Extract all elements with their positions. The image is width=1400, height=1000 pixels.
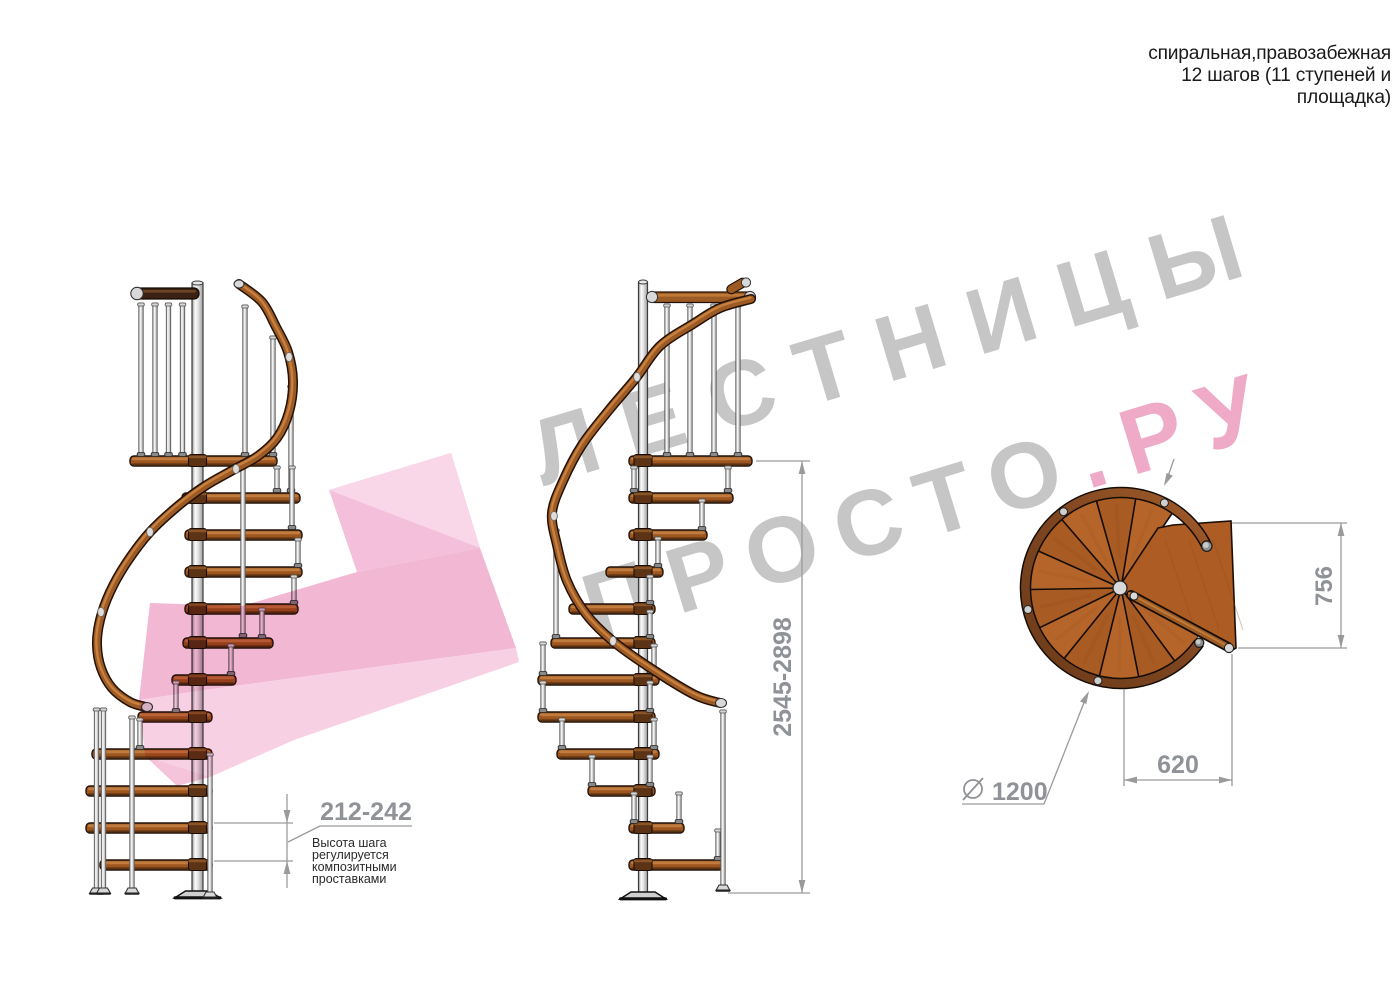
svg-text:212-242: 212-242	[320, 798, 412, 826]
svg-text:проставками: проставками	[312, 872, 386, 886]
svg-text:1200: 1200	[992, 778, 1048, 806]
svg-text:620: 620	[1157, 751, 1199, 779]
svg-text:2545-2898: 2545-2898	[769, 617, 797, 737]
svg-text:756: 756	[1311, 566, 1338, 606]
svg-text:спиральная,правозабежная: спиральная,правозабежная	[1148, 43, 1391, 64]
svg-text:12 шагов (11 ступеней и: 12 шагов (11 ступеней и	[1181, 65, 1391, 86]
svg-text:площадка): площадка)	[1297, 87, 1391, 108]
